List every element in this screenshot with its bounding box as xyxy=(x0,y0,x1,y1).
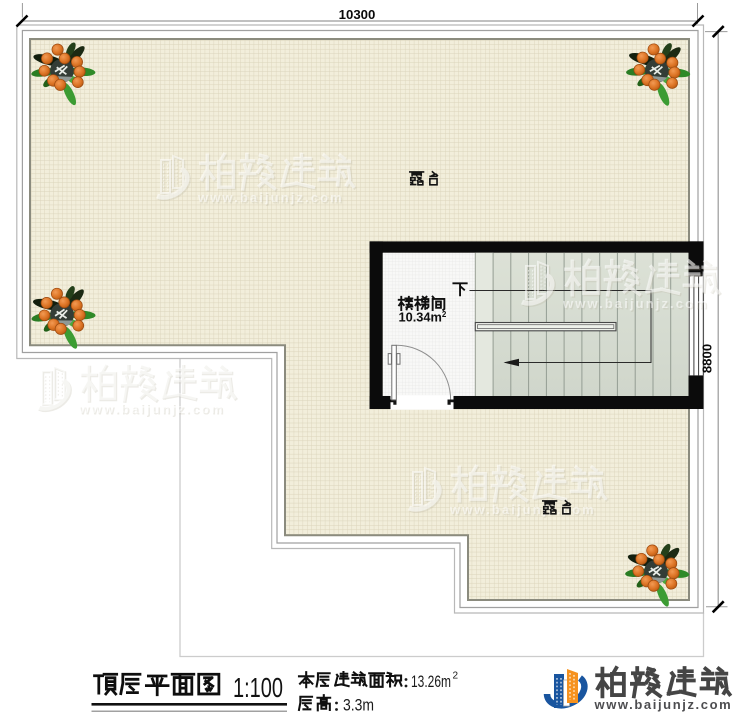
svg-text:3.3m: 3.3m xyxy=(343,697,374,715)
svg-text:2: 2 xyxy=(453,671,459,682)
svg-text:10300: 10300 xyxy=(339,7,376,22)
svg-text:10.34m2: 10.34m2 xyxy=(399,310,447,325)
svg-text:1:100: 1:100 xyxy=(233,672,283,703)
svg-text:8800: 8800 xyxy=(700,344,715,373)
svg-text:www.baijunjz.com: www.baijunjz.com xyxy=(594,697,733,712)
svg-text:13.26m: 13.26m xyxy=(411,673,451,691)
